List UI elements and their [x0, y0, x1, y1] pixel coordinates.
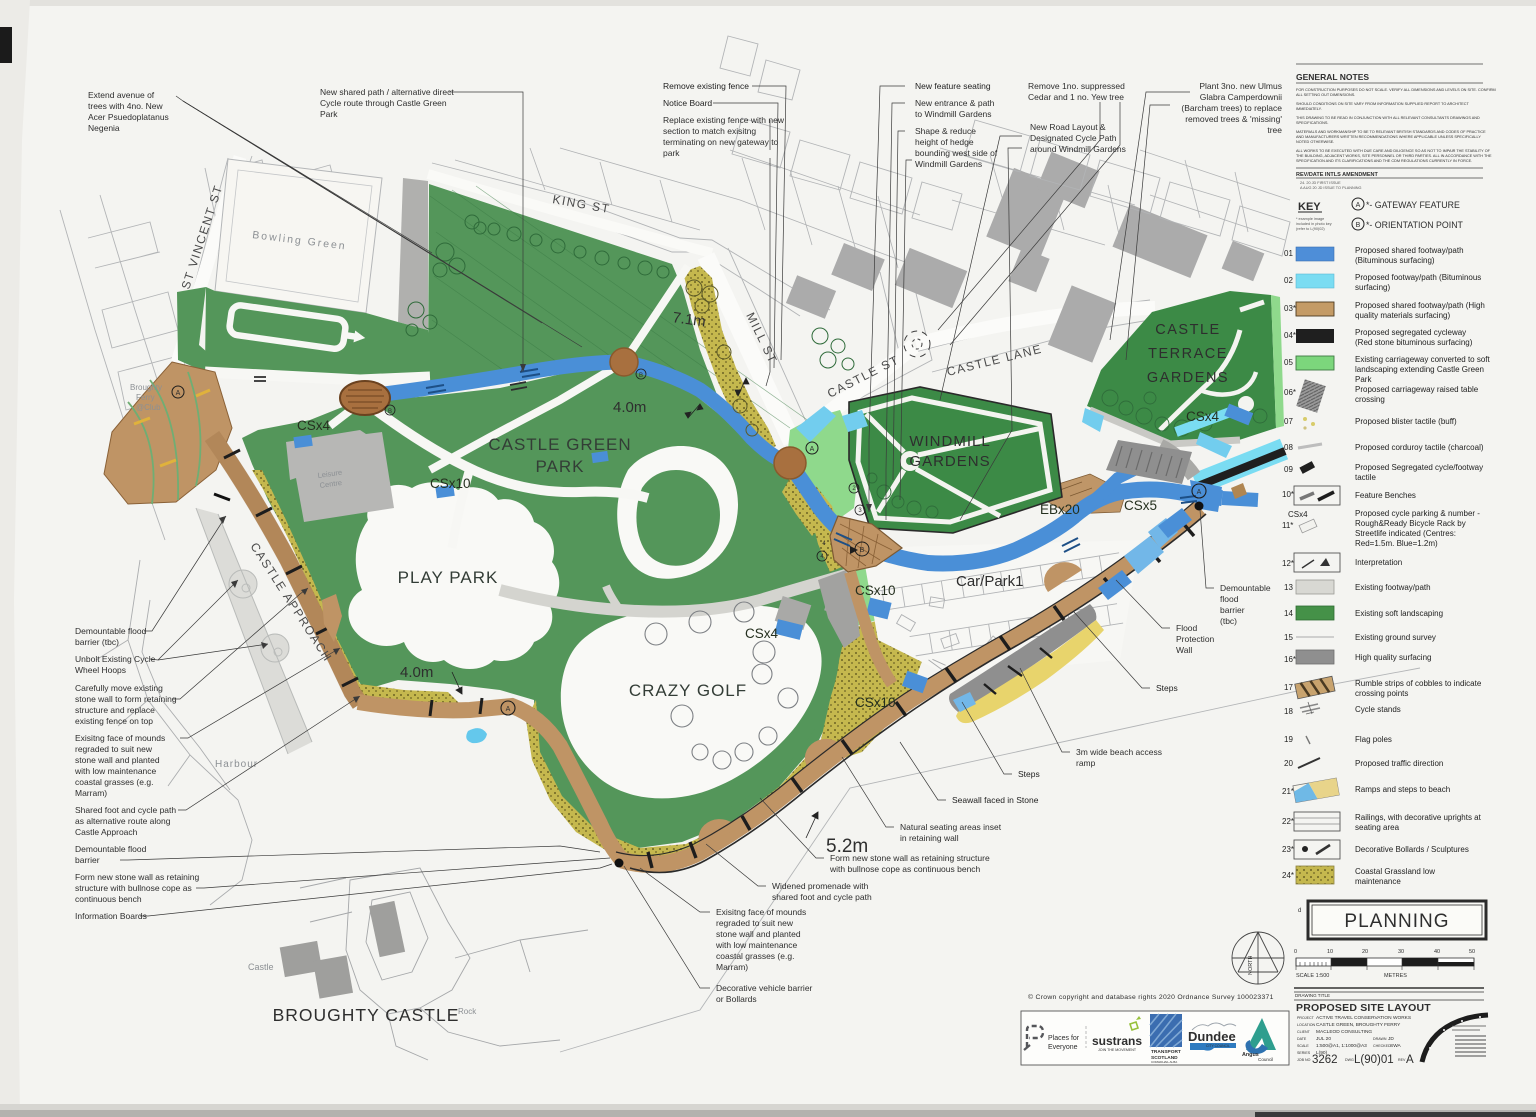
svg-text:Proposed Segregated cycle/foot: Proposed Segregated cycle/footway [1355, 463, 1483, 472]
svg-text:regraded to suit new: regraded to suit new [716, 918, 794, 928]
svg-text:20: 20 [1362, 949, 1368, 955]
svg-text:Dundee: Dundee [1188, 1029, 1236, 1044]
svg-text:Existing footway/path: Existing footway/path [1355, 583, 1431, 592]
svg-text:CSx5: CSx5 [1124, 498, 1157, 513]
svg-text:Decorative Bollards / Sculptur: Decorative Bollards / Sculptures [1355, 845, 1469, 854]
svg-text:Exisitng face of mounds: Exisitng face of mounds [716, 907, 806, 917]
svg-text:landscaping extending Castle G: landscaping extending Castle Green [1355, 365, 1484, 374]
svg-text:LOCATION: LOCATION [1297, 1023, 1316, 1027]
svg-text:A: A [810, 446, 815, 453]
svg-text:GARDENS: GARDENS [909, 453, 990, 470]
svg-text:Proposed cycle parking & numbe: Proposed cycle parking & number - [1355, 509, 1480, 518]
svg-text:Rough&Ready Bicycle Rack by: Rough&Ready Bicycle Rack by [1355, 519, 1466, 528]
svg-text:Shared foot and cycle path: Shared foot and cycle path [75, 805, 176, 815]
svg-text:Shape & reduce: Shape & reduce [915, 126, 976, 136]
svg-text:3262: 3262 [1312, 1054, 1338, 1066]
svg-text:New feature seating: New feature seating [915, 81, 991, 91]
svg-text:SERIES: SERIES [1297, 1051, 1311, 1055]
svg-text:CSx10: CSx10 [855, 695, 896, 710]
svg-text:JUL 20: JUL 20 [1316, 1036, 1331, 1042]
svg-text:MACLEOD CONSULTING: MACLEOD CONSULTING [1316, 1029, 1372, 1035]
svg-text:B: B [1356, 222, 1361, 229]
svg-text:Interpretation: Interpretation [1355, 558, 1402, 567]
svg-text:Proposed carriageway raised ta: Proposed carriageway raised table [1355, 385, 1479, 394]
svg-text:stone wall and planted: stone wall and planted [75, 755, 160, 765]
svg-text:SWA: SWA [1390, 1043, 1402, 1049]
svg-text:A: A [176, 390, 181, 397]
svg-text:Widened promenade with: Widened promenade with [772, 881, 869, 891]
svg-text:DATE: DATE [1297, 1037, 1307, 1041]
svg-text:Steps: Steps [1018, 769, 1040, 779]
svg-text:GENERAL NOTES: GENERAL NOTES [1296, 72, 1369, 82]
svg-text:Flood: Flood [1176, 623, 1198, 633]
svg-text:Castle Approach: Castle Approach [75, 827, 138, 837]
svg-text:Broughty: Broughty [130, 383, 162, 392]
svg-text:ACTIVE TRAVEL CONSERVATION WOR: ACTIVE TRAVEL CONSERVATION WORKS [1316, 1015, 1411, 1021]
svg-text:07: 07 [1284, 417, 1293, 426]
svg-text:CSx4: CSx4 [745, 626, 779, 641]
svg-text:JD: JD [1388, 1036, 1394, 1042]
svg-text:Steps: Steps [1156, 683, 1178, 693]
svg-text:Angus: Angus [1242, 1052, 1259, 1058]
svg-text:crossing points: crossing points [1355, 689, 1408, 698]
svg-text:Unbolt Existing Cycle: Unbolt Existing Cycle [75, 654, 156, 664]
svg-text:with low maintenance: with low maintenance [74, 766, 157, 776]
svg-text:22*: 22* [1282, 817, 1294, 826]
svg-text:Proposed traffic direction: Proposed traffic direction [1355, 759, 1443, 768]
svg-text:terminating on new gateway to: terminating on new gateway to [663, 137, 779, 147]
svg-text:Coastal Grassland low: Coastal Grassland low [1355, 867, 1435, 876]
svg-text:CSx4: CSx4 [297, 418, 331, 433]
svg-text:sustrans: sustrans [1092, 1034, 1142, 1048]
svg-text:10: 10 [1327, 949, 1333, 955]
svg-text:TRANSPORT: TRANSPORT [1151, 1049, 1181, 1055]
svg-text:A: A [1197, 489, 1202, 496]
svg-text:Remove existing fence: Remove existing fence [663, 81, 749, 91]
svg-text:Proposed blister tactile (buff: Proposed blister tactile (buff) [1355, 417, 1457, 426]
svg-text:CHECKED: CHECKED [1373, 1044, 1391, 1048]
svg-text:Park: Park [1355, 375, 1372, 384]
svg-text:A AUG 20 JD ISSU: A AUG 20 JD ISSUE TO PLANNING [1300, 186, 1362, 190]
svg-text:3m wide beach access: 3m wide beach access [1076, 747, 1162, 757]
svg-text:Places for: Places for [1048, 1035, 1080, 1042]
svg-text:surfacing): surfacing) [1355, 283, 1390, 292]
svg-text:barrier: barrier [75, 855, 100, 865]
svg-text:IMMEDIATELY.: IMMEDIATELY. [1296, 107, 1322, 111]
svg-text:Existing ground survey: Existing ground survey [1355, 633, 1436, 642]
svg-text:Railings, with decorative upri: Railings, with decorative uprights at [1355, 813, 1482, 822]
svg-text:Replace existing fence with ne: Replace existing fence with new [663, 115, 785, 125]
svg-text:THIS DRAWING TO BE READ IN CON: THIS DRAWING TO BE READ IN CONJUNCTION W… [1296, 116, 1480, 120]
svg-text:Wall: Wall [1176, 645, 1192, 655]
svg-text:03*: 03* [1284, 304, 1296, 313]
svg-text:PLAY PARK: PLAY PARK [398, 568, 499, 587]
svg-text:Glabra Camperdownii: Glabra Camperdownii [1200, 92, 1282, 102]
svg-text:NORTH: NORTH [1248, 956, 1254, 975]
svg-text:*- ORIENTATION POINT: *- ORIENTATION POINT [1366, 220, 1464, 230]
svg-text:Form new stone wall as retaini: Form new stone wall as retaining [75, 872, 200, 882]
svg-text:20: 20 [1284, 759, 1293, 768]
svg-text:maintenance: maintenance [1355, 877, 1401, 886]
svg-text:Streetlife indicated (Centres:: Streetlife indicated (Centres: [1355, 529, 1456, 538]
svg-text:01: 01 [1284, 249, 1293, 258]
svg-text:15: 15 [1284, 633, 1293, 642]
svg-text:Seawall faced in Stone: Seawall faced in Stone [952, 795, 1039, 805]
svg-text:CASTLE GREEN: CASTLE GREEN [488, 435, 631, 454]
svg-text:New shared path / alternative: New shared path / alternative direct [320, 87, 454, 97]
svg-text:crossing: crossing [1355, 395, 1385, 404]
svg-text:SPECIFICATION AND ITS CLARIFIC: SPECIFICATION AND ITS CLARIFICATIONS AND… [1296, 159, 1472, 163]
svg-text:CSx10: CSx10 [855, 583, 896, 598]
svg-text:AND MANUFACTURERS WRITTEN RECO: AND MANUFACTURERS WRITTEN RECOMMENDATION… [1296, 135, 1481, 139]
svg-text:A: A [1356, 202, 1361, 209]
svg-text:height of hedge: height of hedge [915, 137, 974, 147]
svg-text:stone wall and planted: stone wall and planted [716, 929, 801, 939]
svg-text:GARDENS: GARDENS [1147, 370, 1229, 386]
svg-text:Remove 1no. suppressed: Remove 1no. suppressed [1028, 81, 1125, 91]
svg-text:A: A [506, 706, 511, 713]
svg-text:4.0m: 4.0m [400, 664, 433, 681]
svg-text:Natural seating areas inset: Natural seating areas inset [900, 822, 1002, 832]
svg-text:4.0m: 4.0m [613, 399, 646, 416]
svg-text:13: 13 [1284, 583, 1293, 592]
svg-text:04*: 04* [1284, 331, 1296, 340]
svg-text:continuous bench: continuous bench [75, 894, 142, 904]
svg-text:10*: 10* [1282, 490, 1294, 499]
svg-text:METRES: METRES [1384, 973, 1407, 979]
svg-text:WINDMILL: WINDMILL [909, 433, 990, 450]
svg-text:L(90)01: L(90)01 [1354, 1054, 1394, 1066]
svg-text:12*: 12* [1282, 559, 1294, 568]
svg-text:24*: 24* [1282, 871, 1294, 880]
svg-text:(Red stone bituminous surfacin: (Red stone bituminous surfacing) [1355, 338, 1473, 347]
svg-text:Information Boards: Information Boards [75, 911, 147, 921]
svg-text:02: 02 [1284, 276, 1293, 285]
svg-text:* example image: * example image [1296, 217, 1324, 221]
svg-text:Decorative vehicle barrier: Decorative vehicle barrier [716, 983, 813, 993]
svg-text:Everyone: Everyone [1048, 1044, 1078, 1051]
svg-text:Demountable flood: Demountable flood [75, 844, 147, 854]
svg-text:Proposed shared footway/path: Proposed shared footway/path [1355, 246, 1464, 255]
svg-text:with bullnose cope as continuo: with bullnose cope as continuous bench [829, 864, 981, 874]
svg-text:B: B [388, 409, 392, 415]
svg-text:Notice Board: Notice Board [663, 98, 712, 108]
svg-text:14: 14 [1284, 609, 1293, 618]
svg-text:tactile: tactile [1355, 473, 1376, 482]
svg-text:around Windmill Gardens: around Windmill Gardens [1030, 144, 1126, 154]
svg-text:MATERIALS AND WORKMANSHIP TO B: MATERIALS AND WORKMANSHIP TO BE TO RELEV… [1296, 130, 1486, 134]
svg-text:Cycle stands: Cycle stands [1355, 705, 1401, 714]
svg-text:coastal grasses (e.g.: coastal grasses (e.g. [75, 777, 153, 787]
svg-text:stone wall to form retaining: stone wall to form retaining [75, 694, 177, 704]
svg-text:21*: 21* [1282, 787, 1294, 796]
svg-text:SPECIFICATIONS.: SPECIFICATIONS. [1296, 121, 1328, 125]
svg-text:trees with 4no. New: trees with 4no. New [88, 101, 164, 111]
svg-text:Wheel Hoops: Wheel Hoops [75, 665, 126, 675]
svg-text:Park: Park [320, 109, 338, 119]
svg-text:A: A [1406, 1054, 1414, 1066]
svg-text:REV: REV [1398, 1058, 1406, 1062]
svg-text:SCALE 1:500: SCALE 1:500 [1296, 973, 1329, 979]
svg-text:CASTLE GREEN, BROUGHTY FERRY: CASTLE GREEN, BROUGHTY FERRY [1316, 1022, 1401, 1028]
svg-text:tree: tree [1267, 125, 1282, 135]
svg-text:ramp: ramp [1076, 758, 1096, 768]
svg-text:BROUGHTY CASTLE: BROUGHTY CASTLE [273, 1005, 460, 1025]
svg-text:Castle: Castle [248, 962, 274, 972]
svg-text:Harbour: Harbour [215, 759, 258, 770]
svg-text:(tbc): (tbc) [1220, 616, 1237, 626]
svg-text:regraded to suit new: regraded to suit new [75, 744, 153, 754]
svg-text:New entrance & path: New entrance & path [915, 98, 995, 108]
svg-text:Marram): Marram) [716, 962, 748, 972]
svg-text:© Crown copyright and database: © Crown copyright and database rights 20… [1028, 993, 1274, 1001]
svg-text:REV/DATE INTLS AMENDMENT: REV/DATE INTLS AMENDMENT [1296, 172, 1379, 178]
svg-text:40: 40 [1434, 949, 1440, 955]
svg-text:Cedar and 1 no. Yew tree: Cedar and 1 no. Yew tree [1028, 92, 1124, 102]
svg-text:Windmill Gardens: Windmill Gardens [915, 159, 982, 169]
svg-text:PROJECT: PROJECT [1297, 1016, 1315, 1020]
svg-text:KEY: KEY [1298, 201, 1321, 213]
svg-text:1:500@A1, 1:1000@A3: 1:500@A1, 1:1000@A3 [1316, 1043, 1367, 1049]
svg-text:Marram): Marram) [75, 788, 107, 798]
svg-text:park: park [663, 148, 680, 158]
svg-text:Carefully move existing: Carefully move existing [75, 683, 163, 693]
svg-text:barrier (tbc): barrier (tbc) [75, 637, 119, 647]
svg-text:removed trees & 'missing': removed trees & 'missing' [1185, 114, 1282, 124]
svg-text:structure and replace: structure and replace [75, 705, 155, 715]
svg-text:Flag poles: Flag poles [1355, 735, 1392, 744]
svg-text:d: d [1298, 908, 1301, 914]
svg-text:JOB NO: JOB NO [1297, 1058, 1311, 1062]
svg-text:CSx4: CSx4 [1288, 510, 1308, 519]
svg-text:THE BUILDING, ADJACENT WORKS,: THE BUILDING, ADJACENT WORKS, SITE PERSO… [1296, 154, 1492, 158]
svg-text:16*: 16* [1284, 655, 1296, 664]
svg-text:(Barcham trees) to replace: (Barcham trees) to replace [1181, 103, 1282, 113]
svg-text:New Road Layout &: New Road Layout & [1030, 122, 1106, 132]
svg-text:CSx10: CSx10 [430, 476, 471, 491]
svg-text:CSx4: CSx4 [1186, 409, 1220, 424]
svg-text:ALL SETTING OUT DIMENSIONS.: ALL SETTING OUT DIMENSIONS. [1296, 93, 1355, 97]
svg-text:Council: Council [1258, 1057, 1273, 1062]
svg-text:flood: flood [1220, 594, 1239, 604]
svg-text:Ramps and steps to beach: Ramps and steps to beach [1355, 785, 1450, 794]
svg-text:section to match exisitng: section to match exisitng [663, 126, 756, 136]
svg-text:Acer Psuedoplatanus: Acer Psuedoplatanus [88, 112, 169, 122]
svg-text:B: B [860, 547, 865, 554]
svg-text:@Club: @Club [136, 403, 161, 412]
svg-text:Form new stone wall as retaini: Form new stone wall as retaining structu… [830, 853, 990, 863]
svg-text:High quality surfacing: High quality surfacing [1355, 653, 1431, 662]
svg-text:Existing soft landscaping: Existing soft landscaping [1355, 609, 1443, 618]
svg-text:*- GATEWAY FEATURE: *- GATEWAY FEATURE [1366, 200, 1460, 210]
svg-text:to Windmill Gardens: to Windmill Gardens [915, 109, 992, 119]
svg-text:CRAZY GOLF: CRAZY GOLF [629, 681, 747, 700]
svg-text:EBx20: EBx20 [1040, 502, 1080, 517]
svg-text:COMHDHAIL ALBA: COMHDHAIL ALBA [1151, 1060, 1177, 1064]
svg-text:ALL WORKS TO BE EXECUTED WITH: ALL WORKS TO BE EXECUTED WITH DUE CARE A… [1296, 149, 1491, 153]
svg-text:18: 18 [1284, 707, 1293, 716]
svg-text:PARK: PARK [535, 457, 584, 476]
svg-text:DWG: DWG [1345, 1058, 1354, 1062]
svg-text:NOTED OTHERWISE.: NOTED OTHERWISE. [1296, 140, 1334, 144]
svg-text:Exisitng face of mounds: Exisitng face of mounds [75, 733, 165, 743]
svg-text:structure with bullnose cope a: structure with bullnose cope as [75, 883, 192, 893]
svg-text:or Bollards: or Bollards [716, 994, 757, 1004]
svg-text:seating area: seating area [1355, 823, 1400, 832]
svg-text:Rumble strips of cobbles to in: Rumble strips of cobbles to indicate [1355, 679, 1482, 688]
svg-text:09: 09 [1284, 465, 1293, 474]
svg-text:DRAWN: DRAWN [1373, 1037, 1387, 1041]
svg-text:05: 05 [1284, 358, 1293, 367]
svg-text:TERRACE: TERRACE [1148, 346, 1228, 362]
svg-text:as alternative route along: as alternative route along [75, 816, 171, 826]
svg-text:(Bituminous surfacing): (Bituminous surfacing) [1355, 256, 1435, 265]
svg-text:CITY COUNCIL: CITY COUNCIL [1206, 1044, 1230, 1048]
svg-text:23*: 23* [1282, 845, 1294, 854]
svg-text:quality materials surfacing): quality materials surfacing) [1355, 311, 1450, 320]
svg-text:CASTLE: CASTLE [1155, 322, 1220, 338]
svg-text:0: 0 [1294, 949, 1297, 955]
svg-text:17: 17 [1284, 683, 1293, 692]
svg-text:SHOULD CONDITIONS ON SITE VARY: SHOULD CONDITIONS ON SITE VARY FROM INFO… [1296, 102, 1470, 106]
svg-text:with low maintenance: with low maintenance [715, 940, 798, 950]
svg-text:Proposed footway/path (Bitumin: Proposed footway/path (Bituminous [1355, 273, 1481, 282]
svg-text:coastal grasses (e.g.: coastal grasses (e.g. [716, 951, 794, 961]
svg-text:JOIN THE MOVEMENT: JOIN THE MOVEMENT [1098, 1048, 1137, 1052]
svg-text:50: 50 [1469, 949, 1475, 955]
svg-text:PLANNING: PLANNING [1344, 911, 1449, 932]
svg-text:Protection: Protection [1176, 634, 1215, 644]
svg-text:DRAWING TITLE: DRAWING TITLE [1295, 993, 1330, 998]
svg-text:Designated Cycle Path: Designated Cycle Path [1030, 133, 1117, 143]
svg-text:Plant 3no. new Ulmus: Plant 3no. new Ulmus [1199, 81, 1282, 91]
svg-text:Demountable: Demountable [1220, 583, 1271, 593]
svg-text:Negenia: Negenia [88, 123, 120, 133]
svg-text:B: B [639, 373, 643, 379]
svg-text:bounding west side of: bounding west side of [915, 148, 998, 158]
svg-text:SCALE: SCALE [1297, 1044, 1309, 1048]
svg-text:Cycle route through Castle Gre: Cycle route through Castle Green [320, 98, 447, 108]
svg-text:08: 08 [1284, 443, 1293, 452]
svg-text:PROPOSED SITE LAYOUT: PROPOSED SITE LAYOUT [1296, 1002, 1431, 1014]
svg-text:19: 19 [1284, 735, 1293, 744]
svg-text:Car/Park1: Car/Park1 [956, 573, 1024, 590]
svg-text:Proposed segregated cycleway: Proposed segregated cycleway [1355, 328, 1466, 337]
svg-text:Demountable flood: Demountable flood [75, 626, 147, 636]
svg-text:FOR CONSTRUCTION PURPOSES DO N: FOR CONSTRUCTION PURPOSES DO NOT SCALE. … [1296, 88, 1496, 92]
svg-text:30: 30 [1398, 949, 1404, 955]
svg-text:Red=1.5m. Blue=1.2m): Red=1.5m. Blue=1.2m) [1355, 539, 1438, 548]
svg-text:barrier: barrier [1220, 605, 1245, 615]
svg-text:Proposed shared footway/path (: Proposed shared footway/path (High [1355, 301, 1485, 310]
svg-text:Proposed corduroy tactile (cha: Proposed corduroy tactile (charcoal) [1355, 443, 1484, 452]
svg-text:CLIENT: CLIENT [1297, 1030, 1311, 1034]
svg-text:Extend avenue of: Extend avenue of [88, 90, 155, 100]
svg-text:(refer to L(90)02): (refer to L(90)02) [1296, 227, 1325, 231]
svg-text:existing fence on top: existing fence on top [75, 716, 153, 726]
svg-text:Existing carriageway converted: Existing carriageway converted to soft [1355, 355, 1491, 364]
svg-text:shared foot and cycle path: shared foot and cycle path [772, 892, 872, 902]
svg-text:11*: 11* [1282, 521, 1293, 530]
svg-text:Feature Benches: Feature Benches [1355, 491, 1416, 500]
svg-text:Ferry: Ferry [136, 393, 155, 402]
svg-text:06*: 06* [1284, 388, 1296, 397]
svg-text:24. 20 JD FIRST IS: 24. 20 JD FIRST ISSUE [1300, 181, 1341, 185]
svg-text:included in photo key: included in photo key [1296, 222, 1332, 226]
svg-text:Rock: Rock [458, 1007, 477, 1016]
svg-text:in retaining wall: in retaining wall [900, 833, 959, 843]
